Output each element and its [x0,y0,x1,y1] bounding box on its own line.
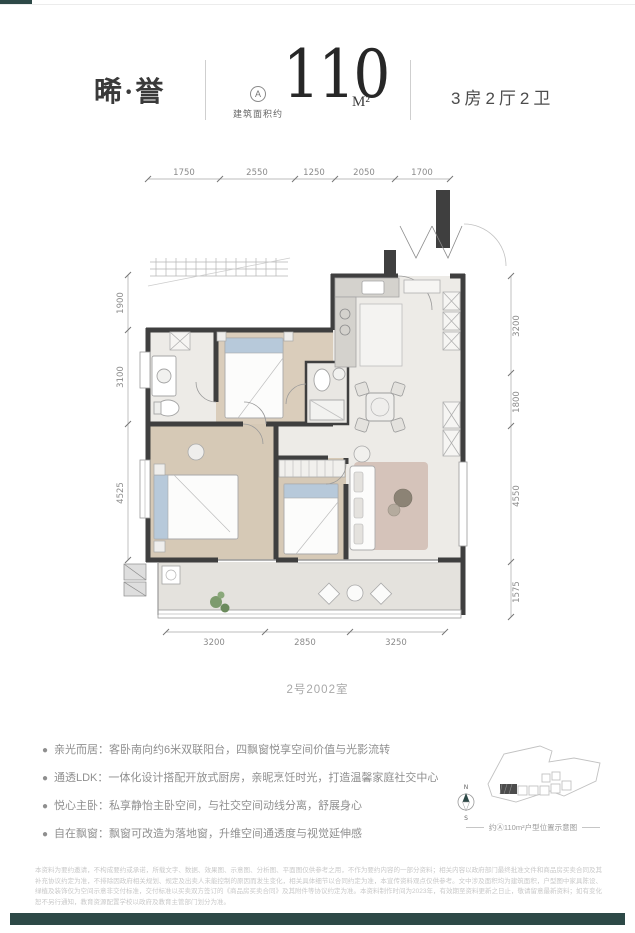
site-location-map: N S [452,738,612,822]
feature-item: ● 通透LDK： 一体化设计搭配开放式厨房，亲昵烹饪时光，打造温馨家庭社交中心 [42,772,442,785]
layout-summary: 3房2厅2卫 [451,84,554,109]
feature-label: 通透LDK： [54,772,108,785]
area-value: 110 [283,40,389,110]
top-divider-line [0,4,635,5]
unit-number-caption: 2号2002室 [0,681,635,697]
caption-dash [582,827,600,828]
bottom-accent-bar [10,913,625,925]
feature-item: ● 悦心主卧： 私享静怡主卧空间，与社交空间动线分离，舒展身心 [42,800,442,813]
svg-text:1800: 1800 [512,391,522,413]
unit-type-badge: A [250,86,266,102]
floorplan-flyer: 晞·誉 A 建筑面积约 110 M² 3房2厅2卫 [0,0,635,933]
master-bedroom [279,460,345,554]
header-divider-left [205,60,206,120]
bullet-icon: ● [42,744,54,757]
svg-text:3250: 3250 [385,638,407,648]
ac-platform [124,564,146,596]
sitemap-caption-text: 约Ⓐ110m²户型位置示意图 [489,822,577,833]
kitchen [335,278,402,367]
svg-text:2850: 2850 [294,638,316,648]
feature-label: 悦心主卧： [54,800,109,813]
awning-hatch [148,258,290,286]
svg-text:3100: 3100 [116,366,126,388]
project-title: 晞·誉 [94,70,165,110]
feature-desc: 一体化设计搭配开放式厨房，亲昵烹饪时光，打造温馨家庭社交中心 [108,772,438,785]
feature-desc: 飘窗可改造为落地窗，升维空间通透度与视觉延伸感 [109,828,362,841]
svg-text:N: N [464,784,469,791]
floor-plan-drawing: 1750 2550 1250 2050 1700 1900 3100 4525 … [98,162,538,662]
svg-text:1575: 1575 [512,581,522,603]
bathroom-1 [152,356,179,416]
sitemap-caption: 约Ⓐ110m²户型位置示意图 [448,822,618,833]
header-divider-right [410,60,411,120]
svg-text:1700: 1700 [411,168,433,178]
compass-icon: N S [458,784,474,822]
caption-dash [466,827,484,828]
legal-disclaimer: 本资料为要约邀请，不构成要约或承诺，所载文字、数据、效果图、示意图、分析图、平面… [35,866,602,908]
svg-text:3200: 3200 [512,315,522,337]
top-accent-sliver [0,0,32,4]
svg-text:1900: 1900 [116,292,126,314]
svg-text:4550: 4550 [512,485,522,507]
feature-item: ● 自在飘窗： 飘窗可改造为落地窗，升维空间通透度与视觉延伸感 [42,828,442,841]
svg-text:4525: 4525 [116,482,126,504]
svg-text:2550: 2550 [246,168,268,178]
feature-desc: 客卧南向约6米双联阳台，四飘窗悦享空间价值与光影流转 [109,744,390,757]
svg-text:3200: 3200 [203,638,225,648]
feature-item: ● 亲光而居： 客卧南向约6米双联阳台，四飘窗悦享空间价值与光影流转 [42,744,442,757]
bullet-icon: ● [42,772,54,785]
bullet-icon: ● [42,828,54,841]
feature-desc: 私享静怡主卧空间，与社交空间动线分离，舒展身心 [109,800,362,813]
svg-text:1250: 1250 [303,168,325,178]
feature-label: 自在飘窗： [54,828,109,841]
svg-text:S: S [464,815,468,822]
highlighted-unit [500,784,517,794]
svg-text:2050: 2050 [353,168,375,178]
svg-text:1750: 1750 [173,168,195,178]
area-annotation: A 建筑面积约 [230,84,286,120]
area-unit: M² [352,94,370,111]
feature-label: 亲光而居： [54,744,109,757]
bullet-icon: ● [42,800,54,813]
area-prefix-label: 建筑面积约 [230,107,286,120]
feature-list: ● 亲光而居： 客卧南向约6米双联阳台，四飘窗悦享空间价值与光影流转 ● 通透L… [42,744,442,856]
